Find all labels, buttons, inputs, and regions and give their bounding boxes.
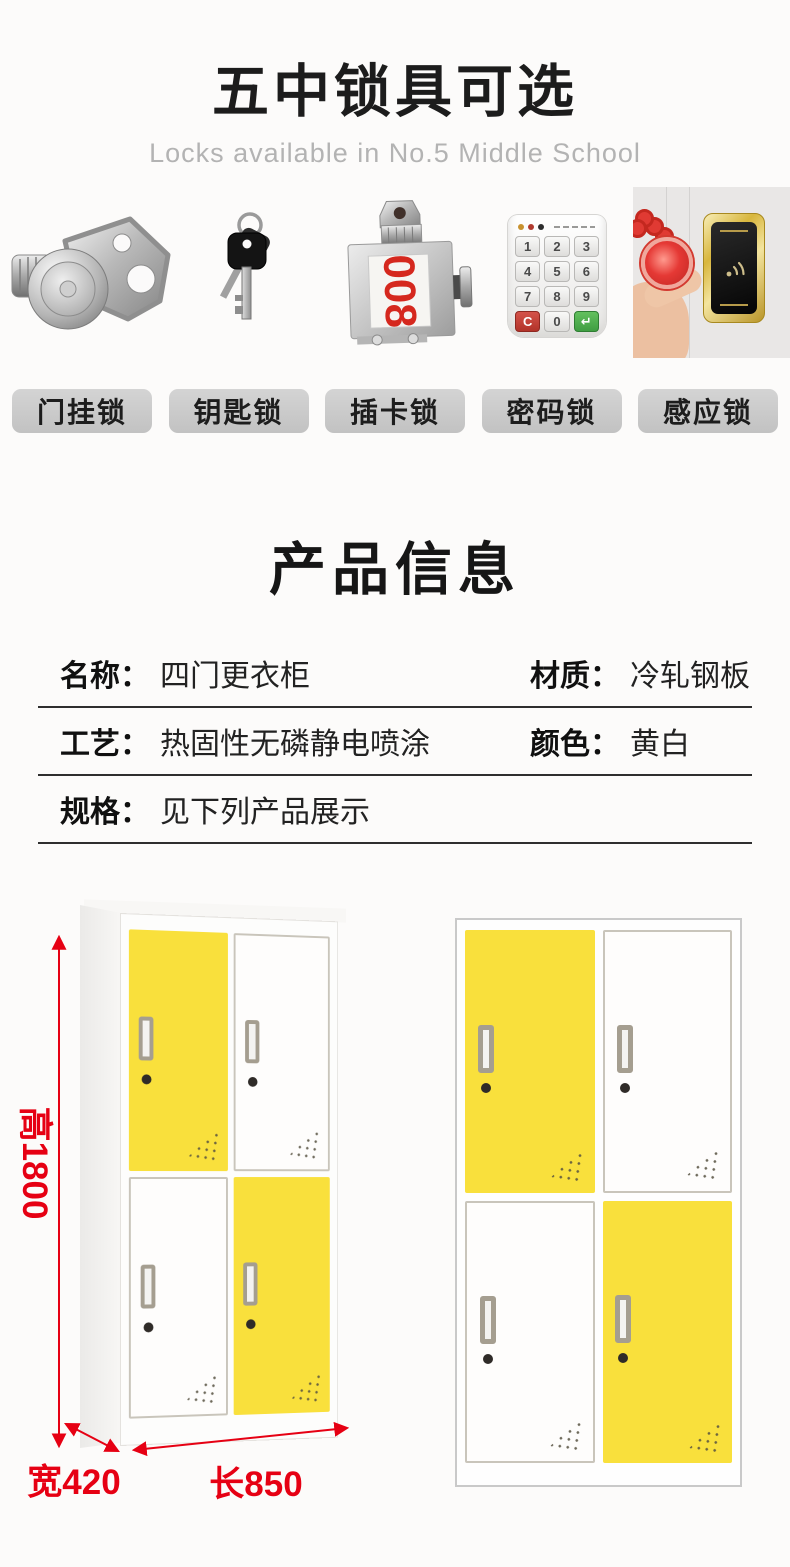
- product-detail-page: 五中锁具可选 Locks available in No.5 Middle Sc…: [0, 0, 790, 1567]
- rfid-reader-panel: [711, 222, 757, 314]
- locker-showcase: 高1800 宽420 长850: [0, 880, 790, 1567]
- reader-label-line: [720, 230, 748, 232]
- key-lock-icon: [198, 209, 298, 344]
- key-4: 4: [515, 261, 540, 282]
- password-lock-icon: 1 2 3 4 5 6 7 8 9 C 0 ↵: [508, 215, 606, 337]
- key-8: 8: [544, 286, 569, 307]
- hasp-lock-photo: [10, 213, 175, 343]
- led-red: [528, 224, 534, 230]
- table-row: 工艺： 热固性无磷静电喷涂 颜色： 黄白: [38, 708, 752, 776]
- length-arrow: [134, 1428, 347, 1450]
- card-lock-number: 008: [374, 254, 426, 329]
- rfid-key-fob: [641, 237, 693, 289]
- contactless-icon: [717, 254, 751, 288]
- key-5: 5: [544, 261, 569, 282]
- card-lock-photo: 008: [333, 197, 473, 352]
- key-lock-photo: [198, 209, 298, 349]
- info-label: 名称：: [60, 651, 150, 695]
- width-arrow: [66, 1424, 118, 1451]
- key-9: 9: [574, 286, 599, 307]
- product-info-title: 产品信息: [0, 524, 790, 606]
- page-title: 五中锁具可选: [0, 46, 790, 128]
- badge-hasp-lock[interactable]: 门挂锁: [12, 389, 152, 433]
- key-6: 6: [574, 261, 599, 282]
- card-lock-icon: 008: [333, 197, 473, 347]
- info-value: 黄白: [630, 719, 690, 763]
- key-0: 0: [544, 311, 569, 332]
- info-value: 见下列产品展示: [160, 787, 370, 831]
- lock-photos-row: 008 1 2 3 4: [0, 185, 790, 377]
- badge-induction-lock[interactable]: 感应锁: [638, 389, 778, 433]
- info-cell-empty: [508, 776, 752, 842]
- info-value: 热固性无磷静电喷涂: [160, 719, 430, 763]
- reader-label-line: [720, 304, 748, 306]
- led-amber: [518, 224, 524, 230]
- product-info-table: 名称： 四门更衣柜 材质： 冷轧钢板 工艺： 热固性无磷静电喷涂 颜色： 黄白 …: [38, 640, 752, 844]
- info-cell-spec: 规格： 见下列产品展示: [38, 776, 508, 842]
- induction-lock-icon: [633, 187, 790, 358]
- info-cell-material: 材质： 冷轧钢板: [508, 640, 752, 706]
- table-row: 名称： 四门更衣柜 材质： 冷轧钢板: [38, 640, 752, 708]
- badge-password-lock[interactable]: 密码锁: [482, 389, 622, 433]
- info-label: 工艺：: [60, 719, 150, 763]
- key-enter: ↵: [574, 311, 599, 332]
- key-7: 7: [515, 286, 540, 307]
- key-2: 2: [544, 236, 569, 257]
- wristband-coil: [633, 219, 647, 238]
- info-label: 材质：: [530, 651, 620, 695]
- induction-lock-photo: [633, 187, 790, 358]
- badge-card-lock[interactable]: 插卡锁: [325, 389, 465, 433]
- keypad-fine-print: [554, 226, 595, 228]
- dimension-width-label: 宽420: [12, 1454, 136, 1505]
- page-subtitle: Locks available in No.5 Middle School: [0, 138, 790, 169]
- hasp-lock-icon: [10, 213, 175, 338]
- info-value: 冷轧钢板: [630, 651, 750, 695]
- table-row: 规格： 见下列产品展示: [38, 776, 752, 844]
- led-dark: [538, 224, 544, 230]
- password-lock-photo: 1 2 3 4 5 6 7 8 9 C 0 ↵: [508, 215, 606, 337]
- badge-key-lock[interactable]: 钥匙锁: [169, 389, 309, 433]
- keypad-led-row: [518, 223, 599, 230]
- keypad-keys: 1 2 3 4 5 6 7 8 9 C 0 ↵: [515, 236, 599, 332]
- info-value: 四门更衣柜: [160, 651, 310, 695]
- info-label: 颜色：: [530, 719, 620, 763]
- key-1: 1: [515, 236, 540, 257]
- rfid-reader: [703, 213, 765, 323]
- dimension-height-label: 高1800: [13, 1093, 55, 1233]
- key-clear: C: [515, 311, 540, 332]
- key-3: 3: [574, 236, 599, 257]
- info-cell-color: 颜色： 黄白: [508, 708, 752, 774]
- info-cell-process: 工艺： 热固性无磷静电喷涂: [38, 708, 508, 774]
- info-label: 规格：: [60, 787, 150, 831]
- dimension-length-label: 长850: [194, 1456, 318, 1507]
- info-cell-name: 名称： 四门更衣柜: [38, 640, 508, 706]
- lock-type-badges: 门挂锁 钥匙锁 插卡锁 密码锁 感应锁: [0, 389, 790, 433]
